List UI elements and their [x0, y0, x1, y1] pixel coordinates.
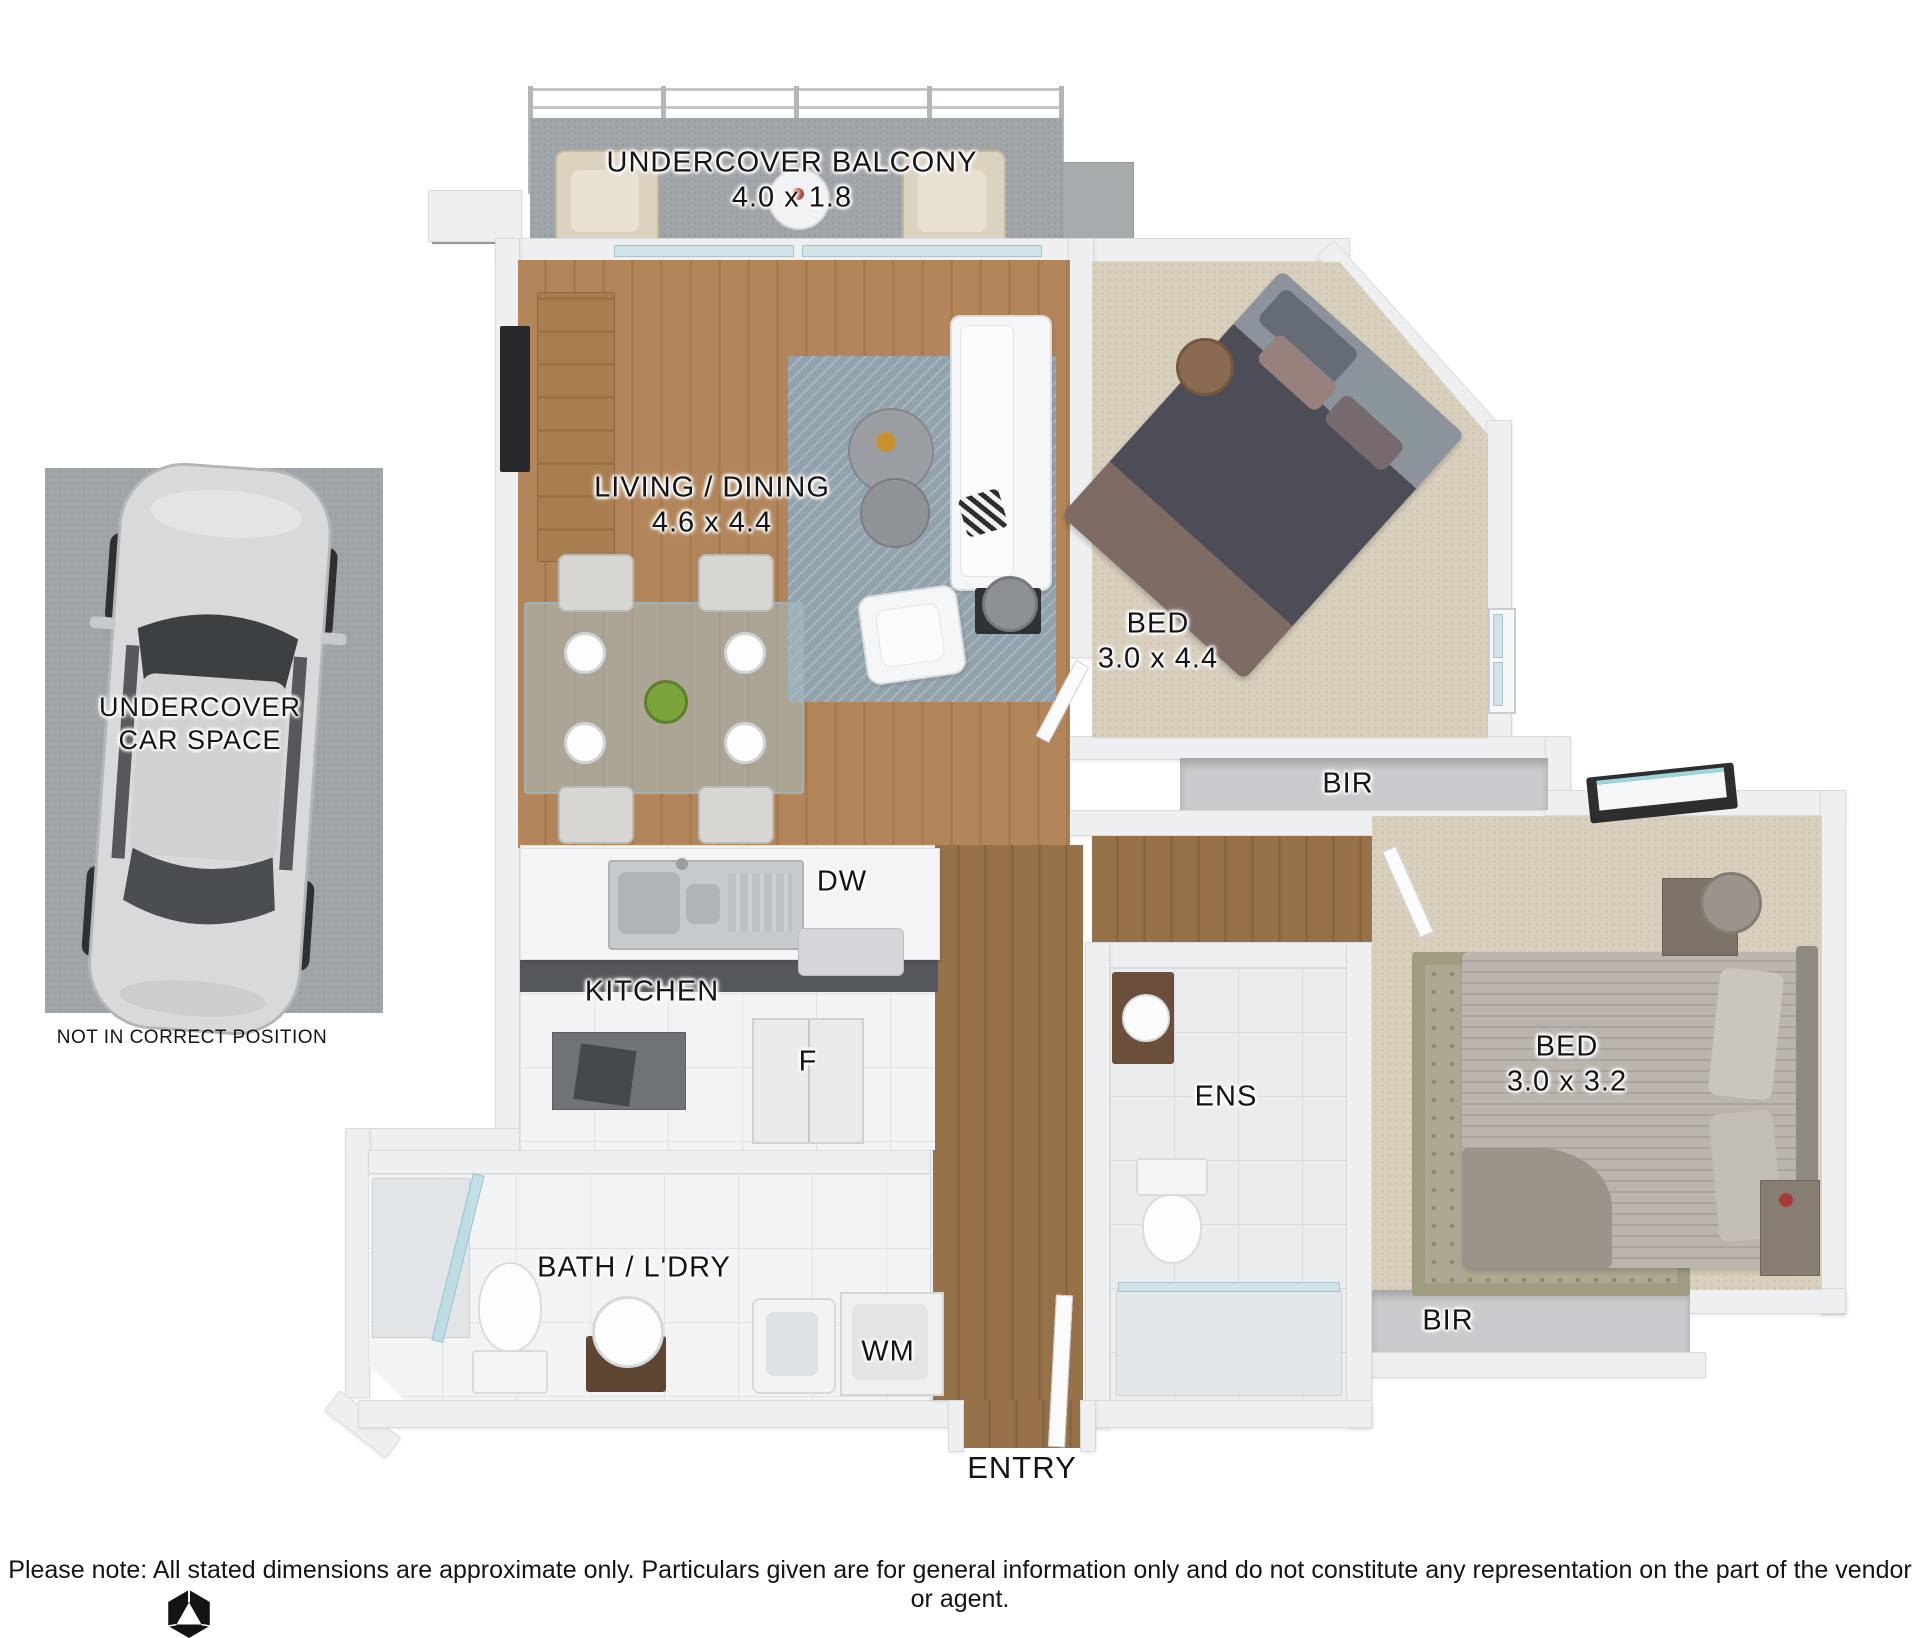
- washing-machine-label: WM: [861, 1334, 915, 1369]
- ens-basin: [1122, 994, 1170, 1042]
- tub-bowl: [766, 1312, 818, 1376]
- bed2-throw: [1462, 1148, 1612, 1268]
- wall-entry-right: [1080, 1400, 1096, 1452]
- concrete-pier: [1062, 162, 1134, 242]
- bath-toilet: [472, 1262, 544, 1392]
- laundry-tub: [752, 1298, 836, 1394]
- toilet-cistern: [472, 1350, 548, 1394]
- tv-screen: [500, 326, 530, 472]
- dining-chair: [698, 786, 774, 844]
- ens-toilet: [1136, 1158, 1204, 1262]
- kitchen-sink: [608, 860, 804, 950]
- armchair: [856, 583, 968, 686]
- wall-entry-left: [948, 1400, 964, 1452]
- dinner-plate: [724, 632, 766, 674]
- wall-bath-top: [345, 1128, 520, 1152]
- bed2-name: BED: [1536, 1031, 1599, 1063]
- bed2-bed: [1462, 952, 1798, 1268]
- dresser-decor: [1779, 1193, 1793, 1207]
- disclaimer-text: Please note: All stated dimensions are a…: [0, 1556, 1920, 1614]
- living-name: LIVING / DINING: [594, 472, 830, 504]
- bed2-pillow: [1707, 967, 1784, 1101]
- dining-chair: [558, 786, 634, 844]
- entry-label: ENTRY: [967, 1450, 1077, 1486]
- fruit-bowl: [644, 680, 688, 724]
- dining-table: [524, 602, 804, 794]
- wall-bed2-right: [1820, 790, 1846, 1315]
- balcony-sliding-door: [614, 245, 794, 257]
- bed1-dims: 3.0 x 4.4: [1098, 642, 1218, 677]
- ens-vanity: [1112, 972, 1174, 1064]
- ens-shower-glass: [1118, 1282, 1340, 1292]
- toilet-cistern: [1136, 1158, 1208, 1196]
- car-space-label: UNDERCOVER CAR SPACE: [75, 691, 325, 757]
- fridge-label: F: [799, 1044, 818, 1079]
- sink-bowl-small: [686, 884, 720, 924]
- bath-label: BATH / L'DRY: [537, 1250, 731, 1285]
- bath-basin: [592, 1296, 664, 1368]
- wall-bed1-top: [1070, 238, 1350, 262]
- dishwasher-front: [798, 928, 904, 976]
- living-label: LIVING / DINING 4.6 x 4.4: [594, 471, 830, 542]
- balcony-dims: 4.0 x 1.8: [607, 181, 978, 216]
- dinner-plate: [564, 722, 606, 764]
- sink-tap: [676, 858, 688, 870]
- bir1-label: BIR: [1322, 766, 1373, 801]
- dining-chair: [698, 554, 774, 612]
- bed1-side-table: [1176, 338, 1234, 396]
- bed2-label: BED 3.0 x 3.2: [1507, 1030, 1627, 1101]
- toilet-bowl: [478, 1262, 542, 1352]
- ens-label: ENS: [1195, 1079, 1258, 1114]
- sink-bowl: [618, 872, 680, 934]
- bir2-floor: [1372, 1290, 1690, 1352]
- dinner-plate: [564, 632, 606, 674]
- kitchen-cabinet: [552, 1032, 686, 1110]
- table-lamp: [982, 576, 1038, 632]
- fridge-door-line: [808, 1020, 810, 1142]
- wall-bir2-bottom: [1360, 1352, 1706, 1378]
- fridge: [752, 1018, 864, 1144]
- bed2-lamp: [1700, 872, 1762, 934]
- car-space-note: NOT IN CORRECT POSITION: [57, 1027, 328, 1049]
- wall-ens-top: [1085, 942, 1372, 968]
- cabinet-box: [573, 1043, 636, 1106]
- wall-bed2-bottom: [1688, 1288, 1846, 1314]
- balcony-sliding-door: [802, 245, 1042, 257]
- bed2-dims: 3.0 x 3.2: [1507, 1065, 1627, 1100]
- dishwasher-label: DW: [817, 864, 867, 899]
- dining-chair: [558, 554, 634, 612]
- car-space-name: UNDERCOVER CAR SPACE: [99, 692, 301, 755]
- kitchen-label: KITCHEN: [585, 974, 719, 1009]
- sofa: [950, 315, 1052, 591]
- wall-bath-bottom: [358, 1400, 954, 1428]
- ens-shower-tray: [1116, 1290, 1342, 1396]
- wall: [428, 190, 522, 242]
- wall-bath-left: [345, 1128, 370, 1398]
- wall-kitchen-bath-divider: [368, 1150, 954, 1174]
- window-glass: [1493, 662, 1503, 706]
- balcony-name: UNDERCOVER BALCONY: [607, 147, 978, 179]
- wall-ens-right: [1346, 942, 1372, 1428]
- window-glass: [1493, 614, 1503, 658]
- bed1-window: [1488, 608, 1516, 714]
- sink-drainer: [728, 874, 792, 932]
- armchair-seat: [874, 602, 945, 668]
- bed1-name: BED: [1127, 608, 1190, 640]
- sofa-cushion: [960, 325, 1014, 577]
- bed1-label: BED 3.0 x 4.4: [1098, 607, 1218, 678]
- coffee-table-bowl: [876, 432, 896, 452]
- dinner-plate: [724, 722, 766, 764]
- coffee-table-small: [860, 478, 930, 548]
- wall-ens-left: [1085, 942, 1110, 1428]
- wall-living-bed1-divider: [1068, 238, 1094, 658]
- wall-ens-bottom: [1085, 1400, 1372, 1428]
- bir2-label: BIR: [1422, 1303, 1473, 1338]
- balcony-label: UNDERCOVER BALCONY 4.0 x 1.8: [607, 146, 978, 217]
- wall-bed1-bottom: [1068, 736, 1568, 760]
- bed2-dresser: [1760, 1180, 1820, 1276]
- floorplan-page: UNDERCOVER CAR SPACE NOT IN CORRECT POSI…: [0, 0, 1920, 1638]
- living-dims: 4.6 x 4.4: [594, 506, 830, 541]
- toilet-bowl: [1142, 1194, 1202, 1264]
